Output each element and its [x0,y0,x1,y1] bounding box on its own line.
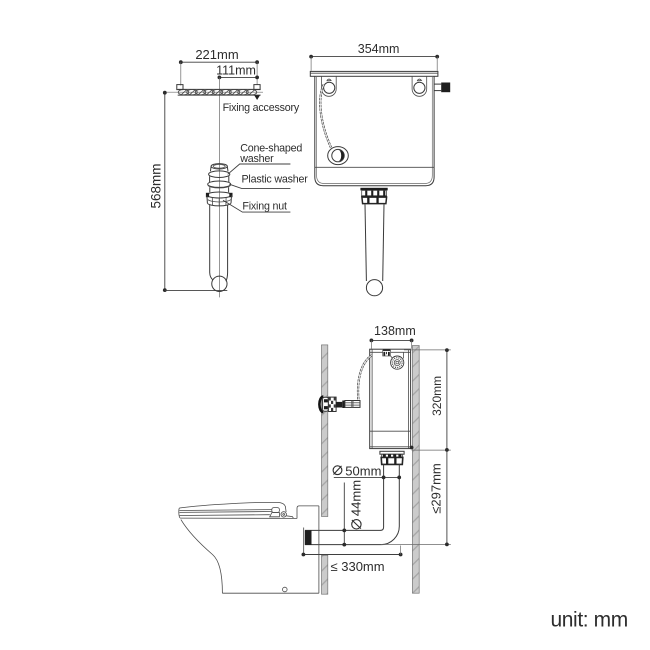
svg-text:≤297mm: ≤297mm [429,463,444,513]
svg-text:111mm: 111mm [216,64,256,78]
svg-text:354mm: 354mm [358,42,400,56]
svg-text:320mm: 320mm [430,376,444,416]
svg-text:unit: mm: unit: mm [551,609,628,632]
svg-text:≤ 330mm: ≤ 330mm [331,559,385,574]
svg-text:washer: washer [239,153,274,165]
svg-text:Fixing nut: Fixing nut [242,200,287,212]
svg-text:44mm: 44mm [349,480,364,516]
svg-text:568mm: 568mm [148,163,163,208]
svg-text:Fixing accessory: Fixing accessory [223,102,300,114]
svg-text:50mm: 50mm [345,463,381,478]
svg-text:221mm: 221mm [195,47,238,62]
svg-text:Plastic washer: Plastic washer [242,173,309,185]
svg-text:138mm: 138mm [374,324,416,338]
